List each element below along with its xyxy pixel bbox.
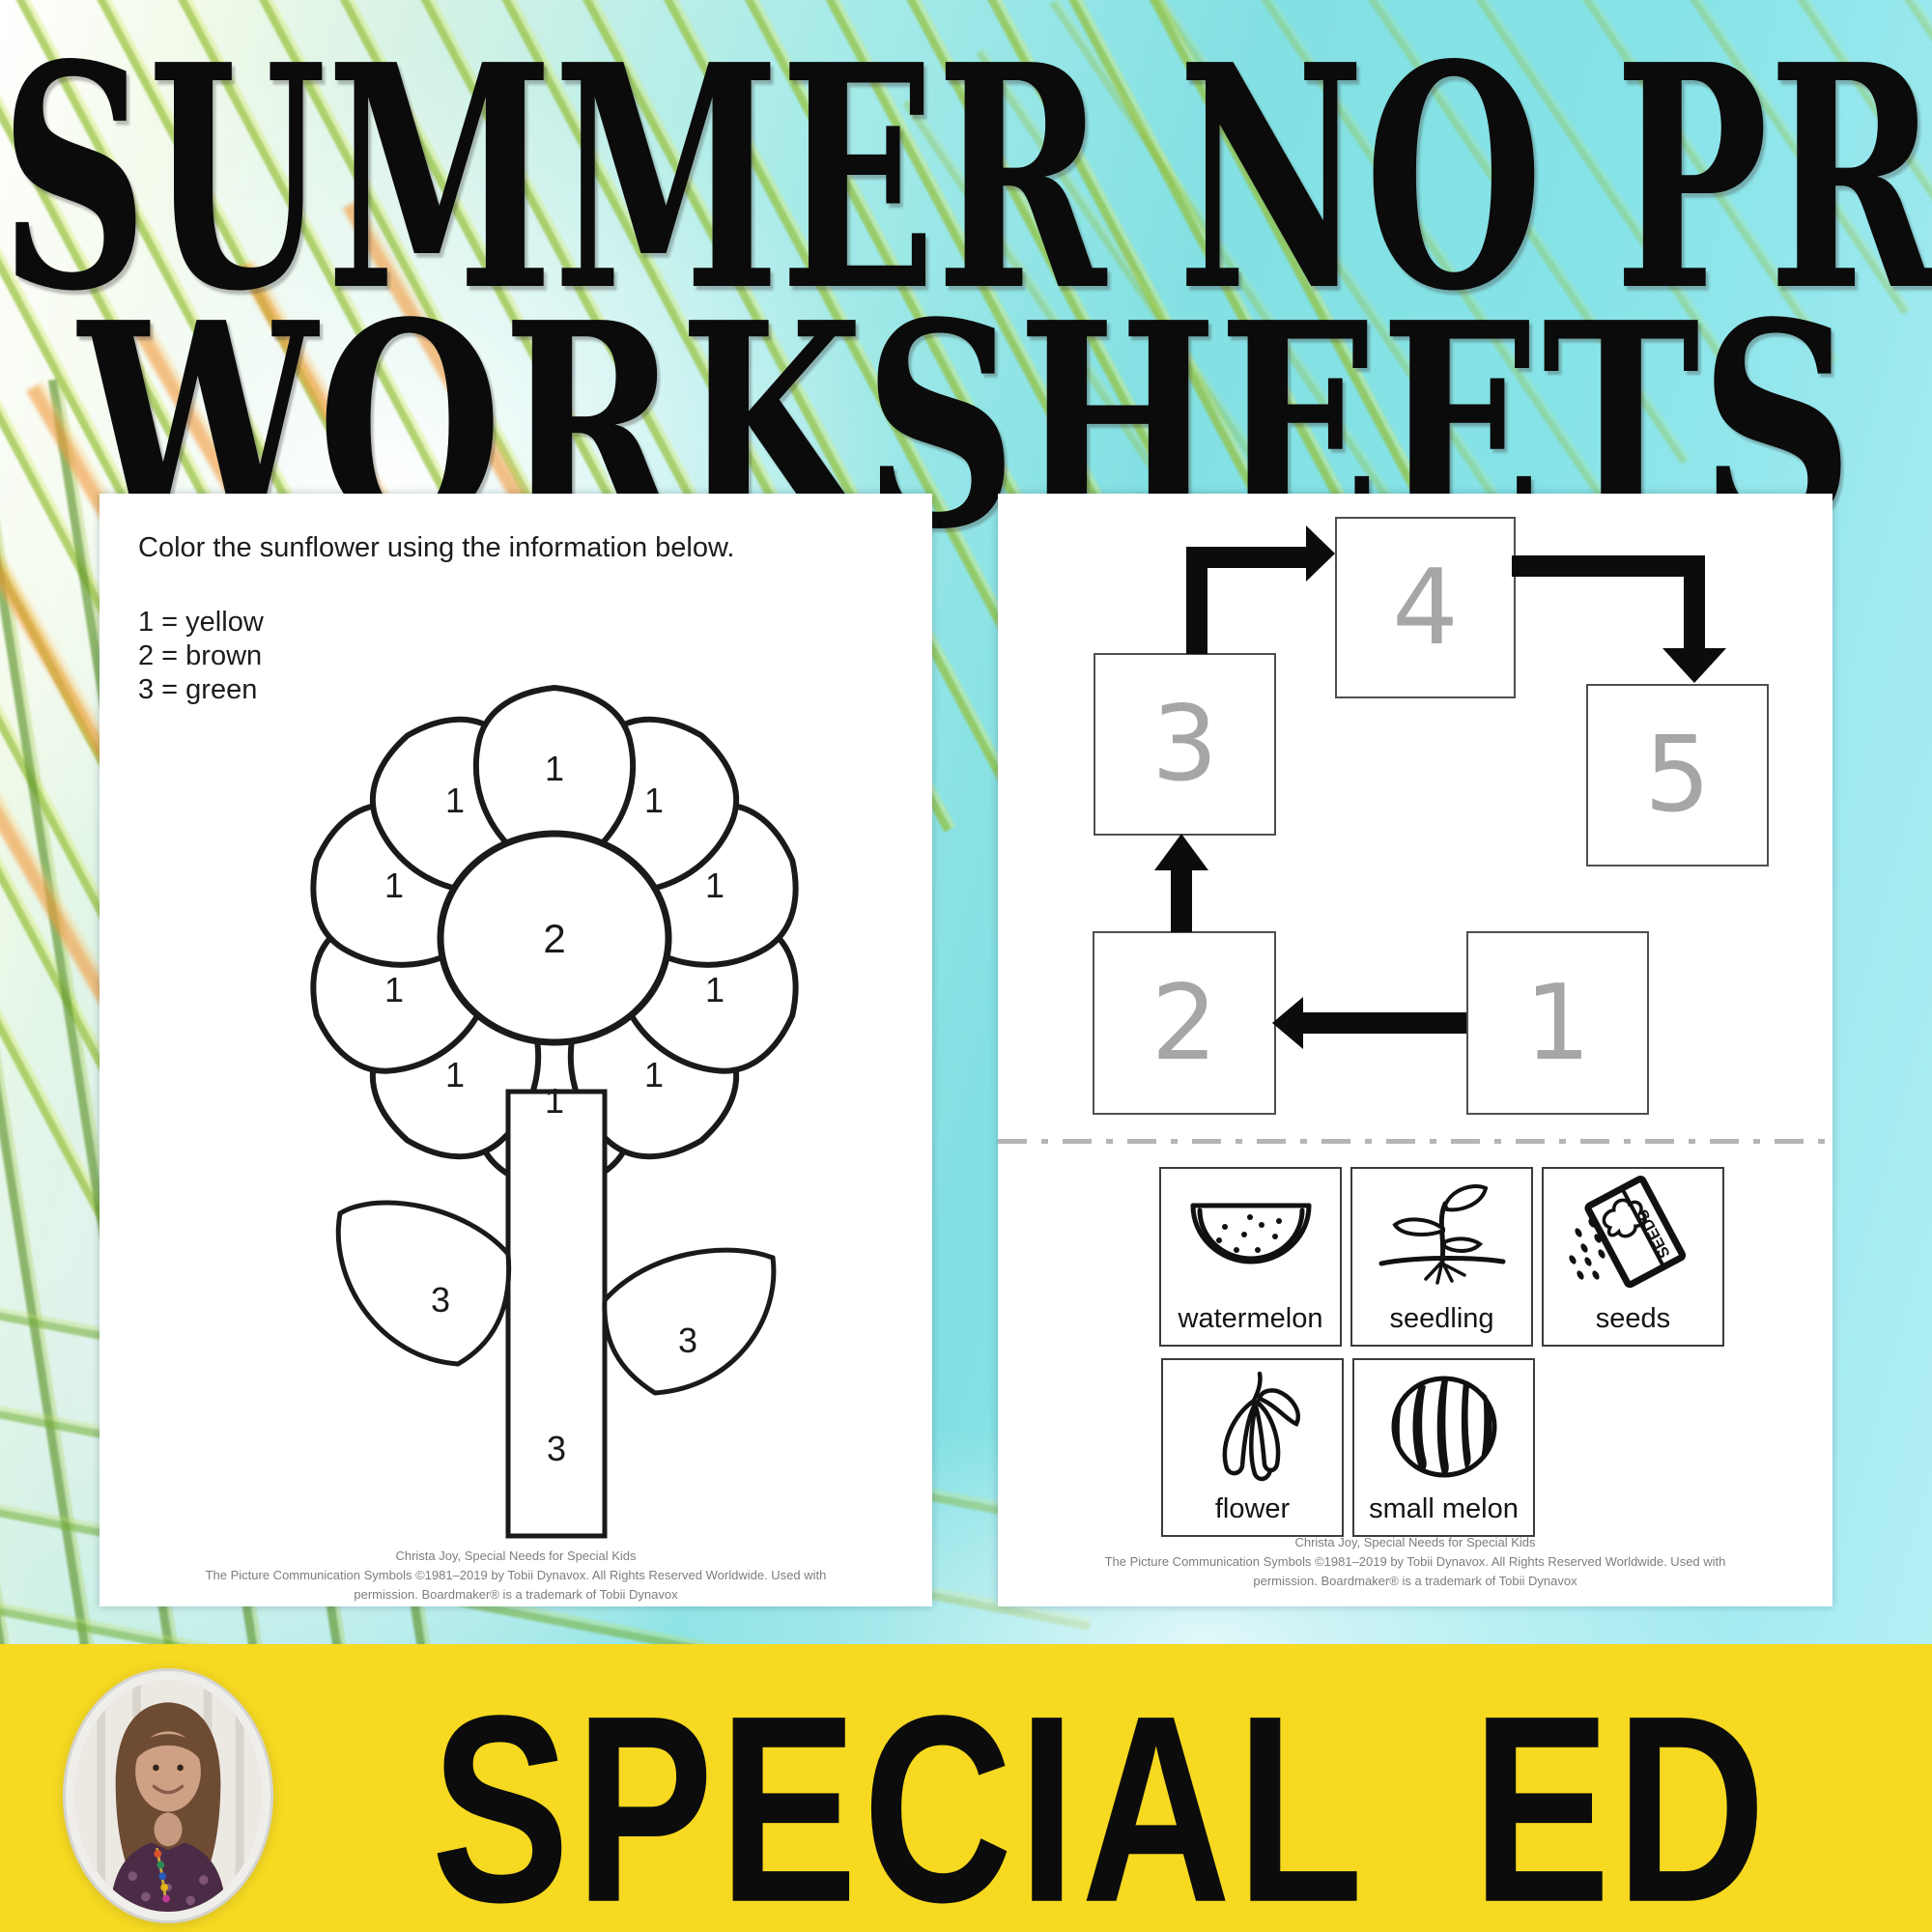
arrow-3-to-4-segment	[1186, 547, 1307, 568]
color-key-item-2: 2 = brown	[138, 639, 264, 673]
sequence-number-3: 3	[1151, 684, 1218, 805]
arrowhead-right-icon	[1306, 526, 1335, 582]
card-seeds: SEEDS seeds	[1542, 1167, 1724, 1347]
card-label: seeds	[1544, 1303, 1722, 1335]
product-cover-poster: SUMMER NO PREP WORKSHEETS Color the sunf…	[0, 0, 1932, 1932]
petal-number: 1	[445, 1055, 465, 1094]
card-small-melon: small melon	[1352, 1358, 1535, 1537]
arrow-1-to-2	[1303, 1012, 1466, 1034]
arrow-2-to-3	[1171, 870, 1192, 932]
center-number: 2	[543, 916, 565, 961]
petal-number: 1	[384, 866, 404, 905]
footer-credit-line: Christa Joy, Special Needs for Special K…	[998, 1533, 1833, 1552]
watermelon-icon	[1169, 1175, 1333, 1300]
worksheet-instruction: Color the sunflower using the informatio…	[138, 532, 734, 564]
card-label: watermelon	[1161, 1303, 1340, 1335]
worksheet-copyright-footer: Christa Joy, Special Needs for Special K…	[99, 1547, 932, 1605]
arrowhead-left-icon	[1272, 997, 1303, 1049]
arrowhead-down-icon	[1662, 648, 1726, 683]
leaf-number: 3	[431, 1280, 450, 1320]
card-seedling: seedling	[1350, 1167, 1533, 1347]
petal-number: 1	[705, 970, 724, 1009]
cut-line-dashed	[998, 1139, 1833, 1144]
arrowhead-up-icon	[1154, 834, 1208, 870]
sequence-box-1: 1	[1466, 931, 1649, 1115]
teacher-photo	[74, 1680, 262, 1912]
petal-number: 1	[705, 866, 724, 905]
card-label: seedling	[1352, 1303, 1531, 1335]
petal-number: 1	[644, 781, 664, 820]
card-label: flower	[1163, 1493, 1342, 1525]
seedling-icon	[1360, 1175, 1524, 1300]
sunflower-coloring-image: 1 1 1 1 1 1 1 1 1 1 2 3 3 3	[241, 676, 879, 1584]
card-watermelon: watermelon	[1159, 1167, 1342, 1347]
petal-number: 1	[384, 970, 404, 1009]
banner-title: SPECIAL ED	[330, 1656, 1872, 1932]
footer-copyright-line: The Picture Communication Symbols ©1981–…	[99, 1566, 932, 1585]
worksheet-copyright-footer: Christa Joy, Special Needs for Special K…	[998, 1533, 1833, 1591]
sequence-number-1: 1	[1524, 963, 1591, 1084]
sequence-number-2: 2	[1151, 963, 1218, 1084]
worksheet-life-cycle-sequencing: 4 3 5 2 1	[998, 494, 1833, 1606]
sequence-box-4: 4	[1335, 517, 1516, 698]
arrow-4-to-5-segment	[1684, 555, 1705, 650]
petal-number: 1	[545, 749, 564, 788]
color-key-item-1: 1 = yellow	[138, 606, 264, 639]
sequence-box-5: 5	[1586, 684, 1769, 867]
footer-credit-line: Christa Joy, Special Needs for Special K…	[99, 1547, 932, 1566]
card-label: small melon	[1354, 1493, 1533, 1525]
seeds-icon: SEEDS	[1551, 1175, 1716, 1300]
footer-copyright-line: The Picture Communication Symbols ©1981–…	[998, 1552, 1833, 1572]
sequence-number-4: 4	[1392, 548, 1459, 668]
card-flower: flower	[1161, 1358, 1344, 1537]
sunflower-leaf-left	[338, 1203, 508, 1364]
sequence-box-3: 3	[1094, 653, 1276, 836]
teacher-avatar	[66, 1671, 270, 1920]
sequence-number-5: 5	[1644, 715, 1711, 836]
petal-number: 1	[545, 1081, 564, 1121]
arrow-4-to-5	[1512, 555, 1705, 577]
sequence-box-2: 2	[1093, 931, 1276, 1115]
small-melon-icon	[1362, 1366, 1526, 1492]
petal-number: 1	[644, 1055, 664, 1094]
leaf-number: 3	[678, 1321, 697, 1360]
footer-trademark-line: permission. Boardmaker® is a trademark o…	[998, 1572, 1833, 1591]
worksheet-sunflower-color-by-number: Color the sunflower using the informatio…	[99, 494, 932, 1606]
petal-number: 1	[445, 781, 465, 820]
stem-number: 3	[547, 1429, 566, 1468]
bottom-banner: SPECIAL ED	[0, 1644, 1932, 1932]
footer-trademark-line: permission. Boardmaker® is a trademark o…	[99, 1585, 932, 1605]
sunflower-stem	[508, 1092, 605, 1536]
flower-icon	[1171, 1366, 1335, 1492]
